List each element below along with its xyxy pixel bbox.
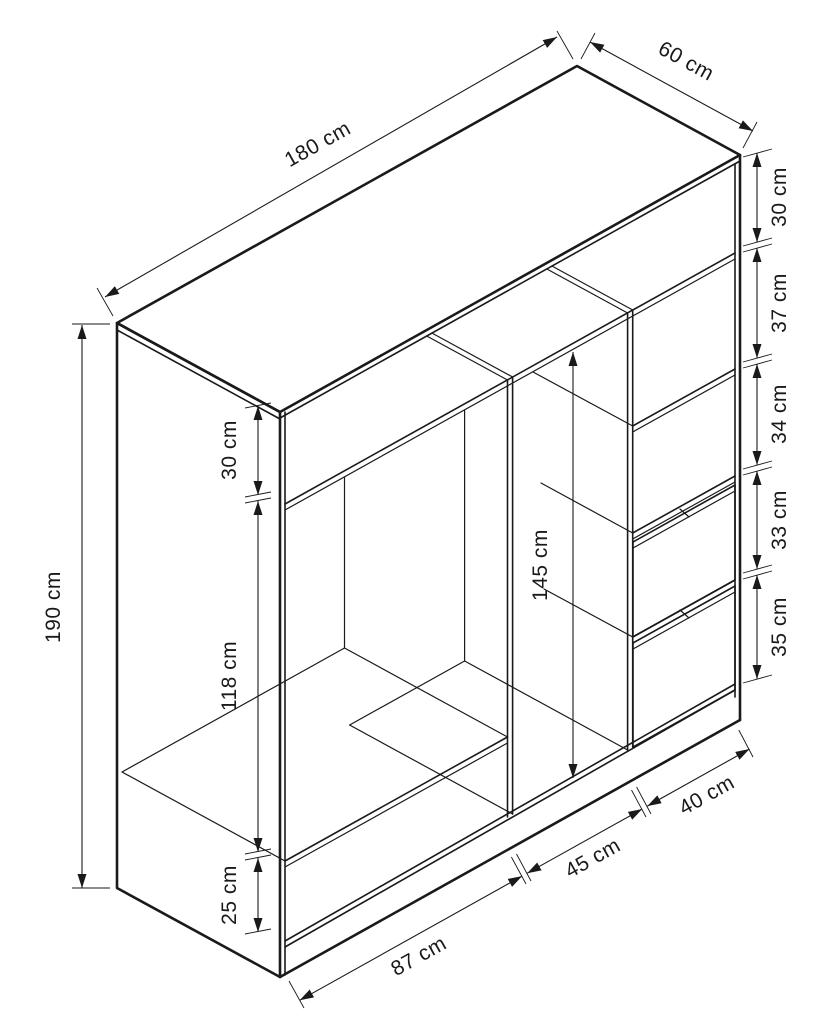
middle-floor-left-edge: [350, 725, 513, 814]
right-compartment-shelves: [533, 369, 735, 643]
dim-middle-hanging: 145 cm: [529, 352, 573, 778]
dim-left-bottom-gap-label: 25 cm: [218, 865, 241, 925]
dim-width-line: [105, 37, 557, 297]
wardrobe-dimension-drawing: 180 cm 60 cm 190 cm 30 cm 118 cm 25 cm 1…: [0, 0, 830, 1025]
right-shelf1-left-edge: [533, 372, 633, 426]
dim-bottom-right-label: 40 cm: [675, 771, 738, 820]
drawer-upper-top-thickness: [633, 491, 735, 548]
front-bottom-edge: [280, 720, 740, 977]
partition-left-top-edge-b: [432, 333, 513, 377]
dim-left-hanging-label: 118 cm: [218, 641, 241, 711]
dim-depth-ext-right: [743, 122, 757, 148]
dim-left-top-gap-label: 30 cm: [218, 420, 241, 480]
left-compartment-shelf: [122, 648, 508, 867]
ext-line: [517, 854, 532, 881]
dim-width-ext-right: [557, 31, 573, 59]
dim-depth-ext-left: [581, 33, 595, 59]
dim-middle-hanging-label: 145 cm: [529, 529, 552, 601]
middle-floor-back-edge: [350, 661, 465, 725]
left-shelf-right-edge: [345, 648, 508, 737]
partition-left-top-edge-a: [427, 336, 508, 380]
partition-right-top-edge-b: [552, 266, 633, 310]
middle-compartment-floor: [350, 661, 628, 814]
dim-left-chain: 30 cm 118 cm 25 cm: [218, 403, 271, 934]
partition-right: [465, 266, 633, 750]
panel-thickness-lines: [117, 161, 740, 975]
top-shelf-front-underside: [285, 259, 735, 510]
dim-width: 180 cm: [97, 31, 573, 316]
right-shelf1-front-underside: [633, 375, 735, 432]
right-shelf2-left-edge: [541, 483, 633, 533]
dim-bottom-chain: 87 cm 45 cm 40 cm: [289, 730, 753, 1008]
drawer-lower-top-thickness: [633, 592, 735, 649]
ext-line: [511, 857, 526, 884]
cabinet-outline: [117, 66, 740, 977]
partition-left: [345, 333, 513, 817]
right-shelf2-front-edge: [633, 476, 735, 533]
left-shelf-left-edge: [122, 772, 285, 861]
right-shelf2-front-underside: [633, 482, 735, 539]
dim-right-gap1-label: 30 cm: [768, 167, 791, 227]
dim-bottom-left-label: 87 cm: [387, 932, 450, 981]
dim-right-chain: 30 cm 37 cm 34 cm 33 cm 35 cm: [743, 149, 791, 683]
dim-width-ext-left: [97, 288, 113, 316]
dim-right-gap4-label: 33 cm: [768, 490, 791, 550]
ext-line: [632, 790, 647, 817]
left-shelf-front-underside: [285, 743, 508, 867]
dim-right-gap2-label: 37 cm: [768, 273, 791, 333]
dim-height: 190 cm: [42, 324, 110, 888]
top-face: [117, 66, 740, 412]
top-shelf-front-edge: [285, 253, 735, 504]
wardrobe-diagram-svg: 180 cm 60 cm 190 cm 30 cm 118 cm 25 cm 1…: [0, 0, 830, 1025]
dim-bottom-left-line: [300, 876, 522, 1000]
dim-right-gap3-label: 34 cm: [768, 384, 791, 444]
dim-depth: 60 cm: [581, 33, 757, 148]
dim-right-gap5-label: 35 cm: [768, 597, 791, 657]
right-shelf1-front-edge: [633, 369, 735, 426]
drawer-lower-front: [633, 586, 735, 747]
ext-line: [289, 981, 304, 1008]
dim-bottom-middle-label: 45 cm: [561, 834, 624, 883]
dim-depth-label: 60 cm: [654, 37, 717, 86]
left-shelf-front-edge: [285, 737, 508, 861]
dim-width-label: 180 cm: [281, 117, 355, 172]
dim-height-label: 190 cm: [42, 571, 65, 643]
right-shelf3-left-edge: [544, 589, 633, 637]
ext-line: [739, 730, 753, 757]
top-shelf: [285, 253, 735, 510]
ext-line: [637, 787, 651, 814]
partition-right-top-edge-a: [547, 269, 628, 313]
middle-floor-right-edge: [465, 661, 628, 750]
left-side-panel: [117, 323, 280, 977]
